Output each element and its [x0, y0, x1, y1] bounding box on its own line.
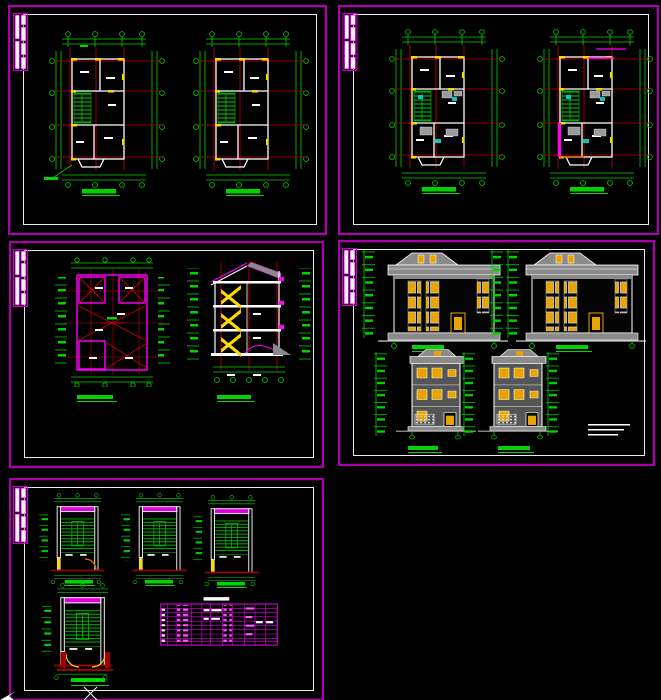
- level-dimension-ladder: [462, 352, 475, 436]
- floor-plan-drawing: [194, 32, 309, 196]
- level-dimension-ladder: [546, 352, 559, 436]
- sheet4-art: [340, 242, 653, 464]
- sheet-floor-plans-2[interactable]: [338, 5, 659, 235]
- stair-detail-drawing: [39, 493, 104, 583]
- notes-text-lines: [588, 424, 630, 436]
- section-drawing: [187, 261, 311, 382]
- sheet-elevations[interactable]: [338, 240, 655, 466]
- floor-plan-drawing: [390, 30, 505, 194]
- level-dimension-ladder: [506, 250, 519, 338]
- title-block-strip: [343, 14, 357, 71]
- side-elevation-drawing: [516, 253, 646, 348]
- title-block-strip: [14, 250, 28, 307]
- level-dimension-ladder: [490, 250, 503, 338]
- title-block-strip: [343, 249, 357, 306]
- sheet-floor-plans-1[interactable]: [8, 5, 327, 235]
- sheet1-art: [10, 7, 325, 233]
- cad-canvas[interactable]: [0, 0, 661, 700]
- stair-detail-drawing: [42, 584, 112, 680]
- floor-plan-drawing: [50, 32, 165, 196]
- sheet5-art: [11, 480, 322, 699]
- sheet2-art: [340, 7, 657, 233]
- floor-plan-drawing: [538, 30, 653, 194]
- stair-detail-drawing: [193, 495, 258, 585]
- sheet-roof-plan-section[interactable]: [9, 241, 324, 468]
- stair-detail-drawing: [121, 493, 186, 583]
- level-dimension-ladder: [374, 352, 387, 436]
- sheet3-art: [11, 243, 322, 466]
- roof-plan-drawing: [55, 258, 170, 387]
- sheet-stair-details[interactable]: [9, 478, 324, 700]
- side-elevation-drawing: [378, 253, 508, 348]
- title-block-strip: [14, 14, 28, 71]
- title-block-strip: [14, 487, 28, 544]
- level-dimension-ladder: [362, 250, 375, 338]
- schedule-table: [161, 597, 278, 645]
